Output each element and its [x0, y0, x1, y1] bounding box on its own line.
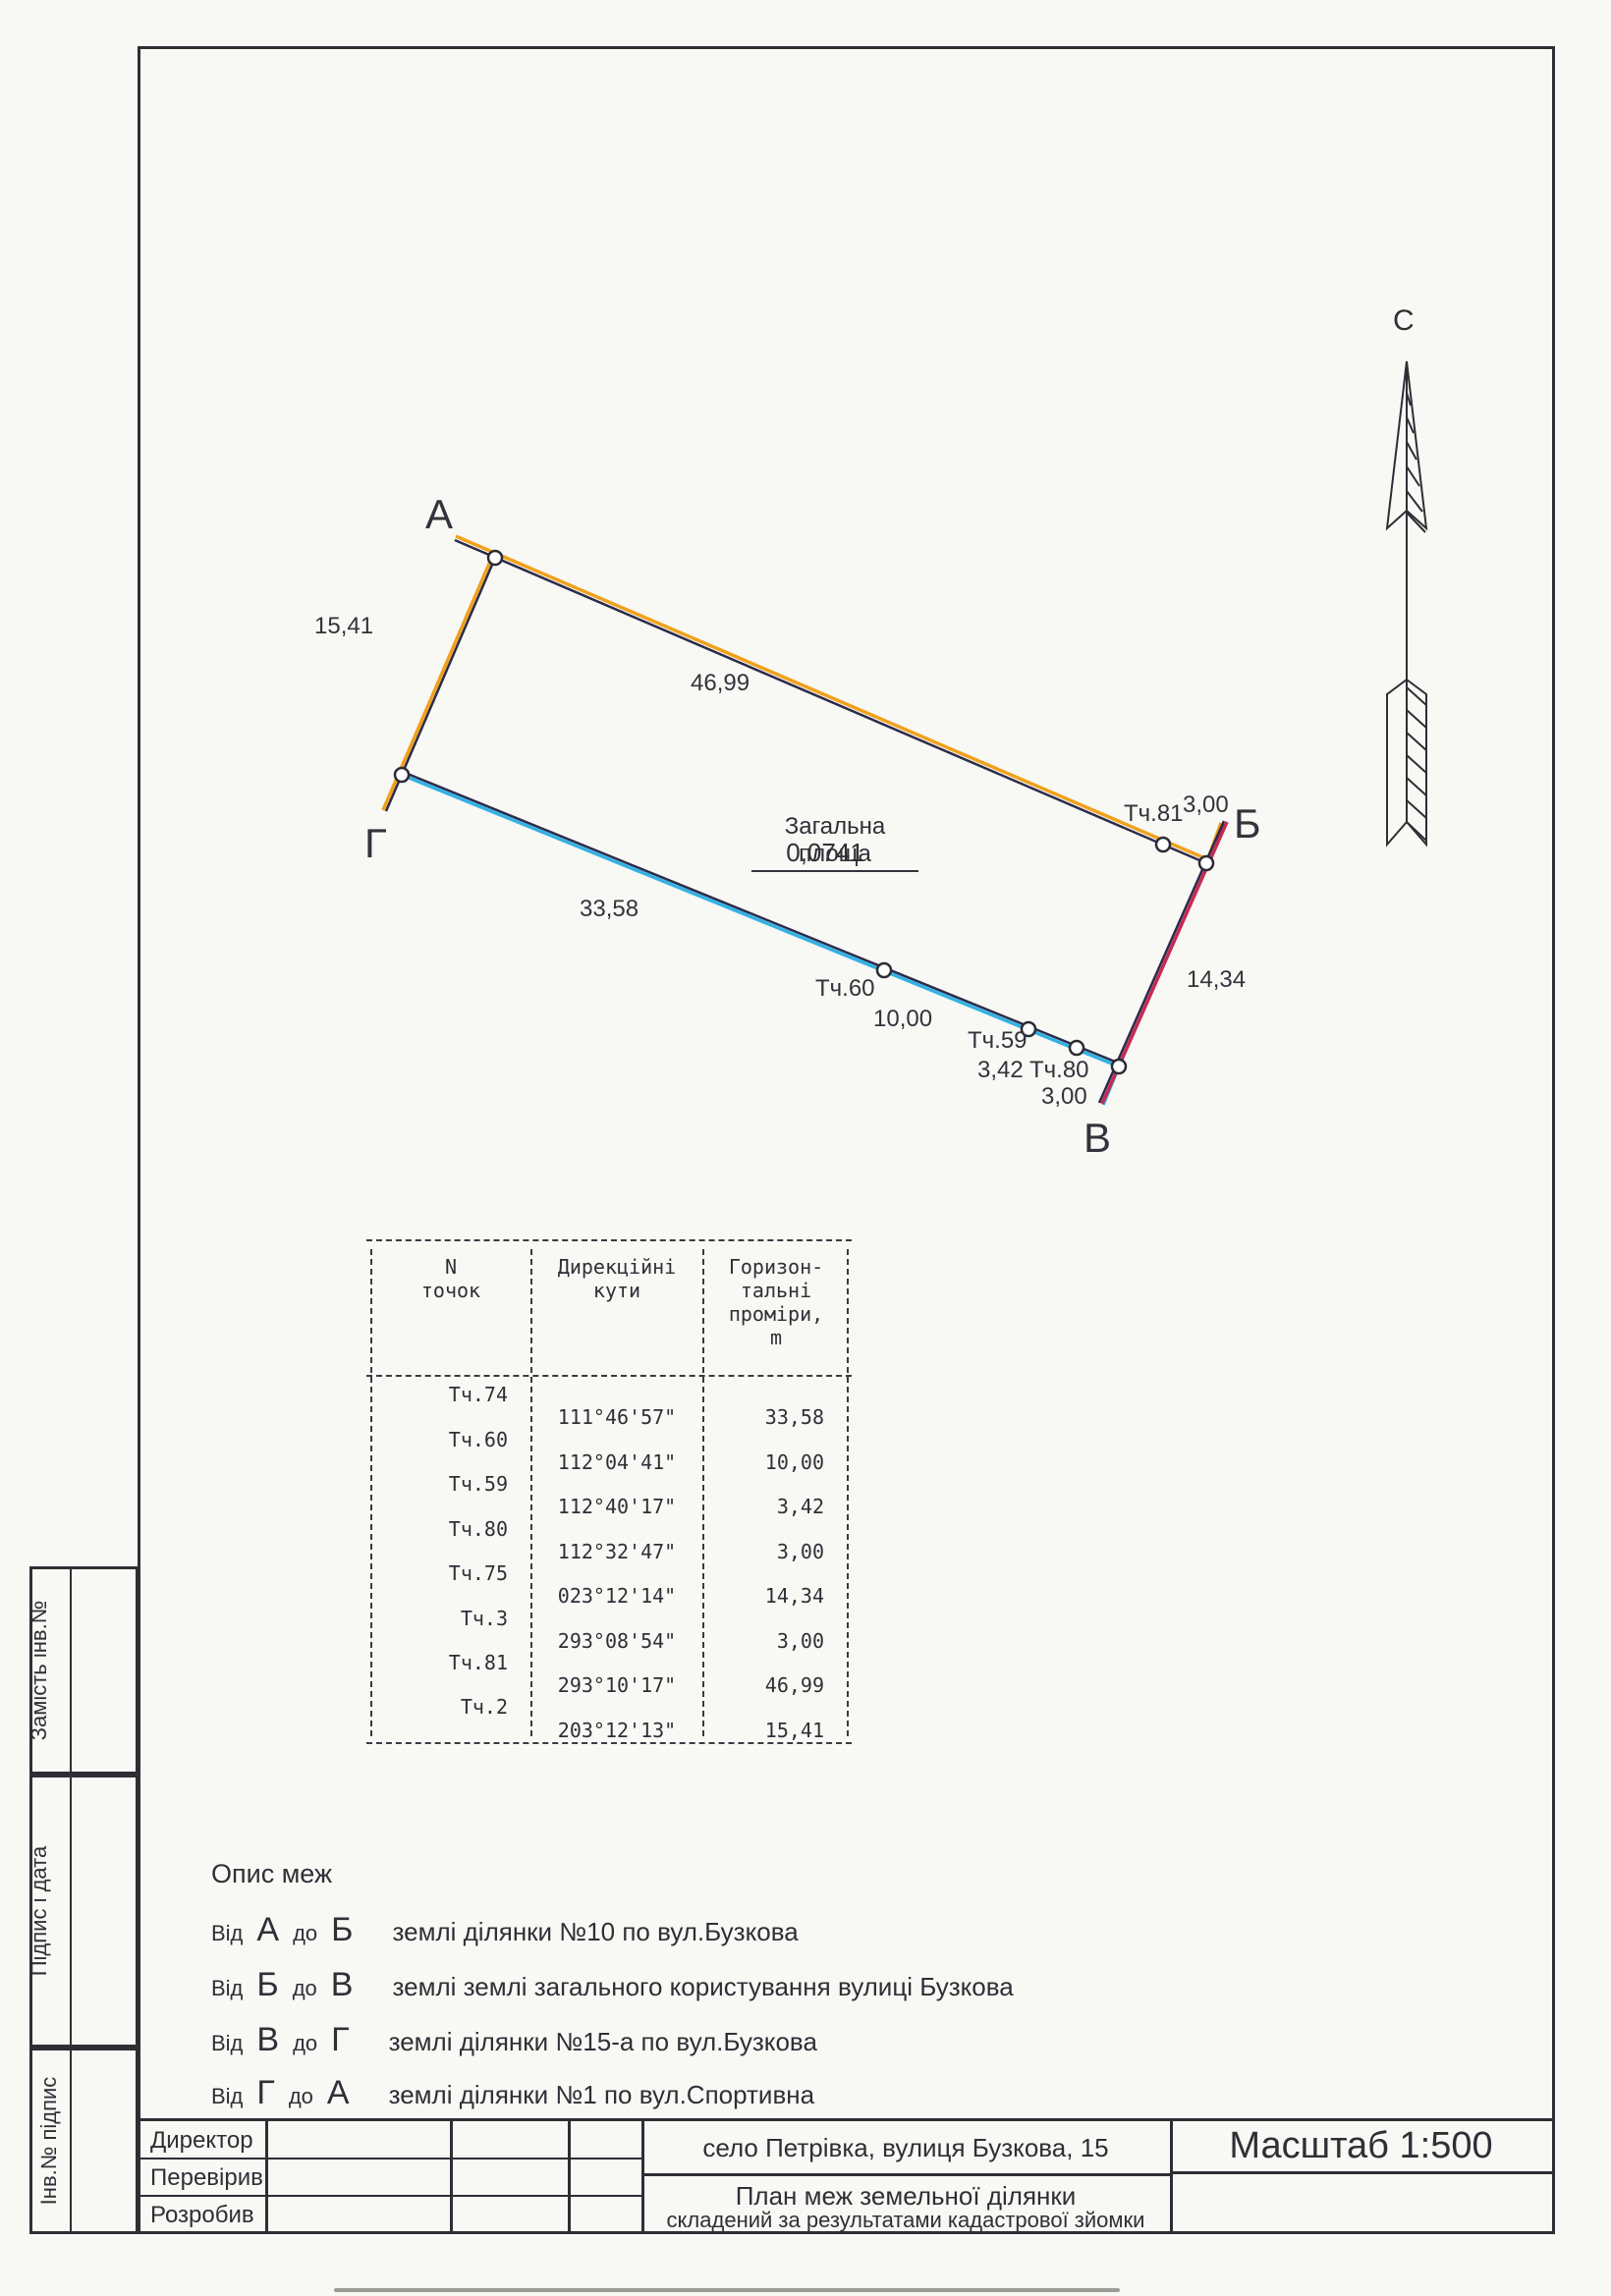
- boundary-desc: землі ділянки №1 по вул.Спортивна: [389, 2080, 814, 2110]
- distance-label-s59: 3,42: [977, 1057, 1024, 1084]
- north-arrow-icon: [1370, 309, 1449, 859]
- boundary-desc: землі ділянки №10 по вул.Бузкова: [392, 1917, 798, 1947]
- sidebar-box-divider: [70, 2050, 72, 2231]
- sidebar-box-divider: [70, 1569, 72, 1772]
- distance-label-g60: 33,58: [580, 896, 639, 923]
- from-letter: Б: [256, 1966, 278, 2004]
- table-dist: 33,58: [706, 1405, 824, 1429]
- scan-artifact: [334, 2288, 1120, 2292]
- title-block-row-line: [140, 2195, 641, 2197]
- boundary-row: Від Б до В землі землі загального корист…: [211, 1966, 1014, 2004]
- role-developed: Розробив: [150, 2202, 254, 2229]
- table-dist: 15,41: [706, 1719, 824, 1742]
- title-block-row-line: [140, 2158, 641, 2159]
- table-point: Тч.81: [370, 1651, 508, 1674]
- table-header-points: N: [372, 1255, 529, 1279]
- sidebar-label-pidpys-data: Підпис і дата: [27, 1775, 52, 2048]
- point-tch80-circle: [1070, 1041, 1083, 1055]
- title-block-divider: [265, 2121, 268, 2231]
- table-point: Тч.80: [370, 1517, 508, 1541]
- sidebar-label-zamist-inv: Замість інв.№: [27, 1566, 52, 1775]
- table-border-top: [366, 1239, 852, 1241]
- table-point: Тч.75: [370, 1561, 508, 1585]
- table-header-points: точок: [372, 1279, 529, 1302]
- table-angle: 112°04'41": [538, 1450, 695, 1474]
- title-block: Директор Перевірив Розробив село Петрівк…: [138, 2118, 1555, 2234]
- table-header-angles: Дирекційні: [538, 1255, 695, 1279]
- scanned-cadastral-plan-sheet: Замість інв.№ Підпис і дата Інв.№ підпис…: [0, 0, 1611, 2296]
- boundary-row: Від А до Б землі ділянки №10 по вул.Бузк…: [211, 1911, 799, 1949]
- from-letter: В: [256, 2021, 279, 2059]
- point-tch81-circle: [1156, 838, 1170, 851]
- distance-label-vb: 14,34: [1187, 966, 1246, 994]
- distance-label-ab: 46,99: [691, 670, 750, 697]
- table-point: Тч.59: [370, 1472, 508, 1496]
- point-tch3-circle: [1199, 856, 1213, 870]
- distance-label-b81: 3,00: [1183, 792, 1229, 819]
- table-point: Тч.60: [370, 1428, 508, 1451]
- table-header-measures: проміри,: [697, 1302, 855, 1326]
- table-angle: 112°40'17": [538, 1495, 695, 1518]
- distance-label-s80: 3,00: [1041, 1083, 1087, 1111]
- to-letter: Б: [331, 1911, 353, 1949]
- corner-label-v: В: [1083, 1115, 1111, 1162]
- boundary-desc: землі ділянки №15-а по вул.Бузкова: [389, 2027, 817, 2057]
- distance-label-ag: 15,41: [314, 613, 373, 640]
- table-header-measures: m: [697, 1326, 855, 1349]
- point-label-tch81: Тч.81: [1124, 800, 1184, 828]
- to-word: до: [293, 1976, 317, 2001]
- role-director: Директор: [150, 2127, 253, 2155]
- table-point: Тч.2: [370, 1695, 508, 1719]
- table-dist: 3,00: [706, 1540, 824, 1563]
- boundary-desc: землі землі загального користування вули…: [392, 1972, 1013, 2002]
- sidebar-box-divider: [70, 1777, 72, 2045]
- map-scale: Масштаб 1:500: [1170, 2125, 1552, 2167]
- title-block-row-line: [1170, 2171, 1552, 2174]
- title-block-row-line: [641, 2173, 1170, 2176]
- role-checked: Перевірив: [150, 2164, 263, 2192]
- table-angle: 203°12'13": [538, 1719, 695, 1742]
- table-border-bottom: [366, 1742, 852, 1744]
- point-label-tch60: Тч.60: [815, 975, 875, 1003]
- from-word: Від: [211, 2084, 243, 2109]
- table-header-measures: тальні: [697, 1279, 855, 1302]
- document-subtitle: складений за результатами кадастрової зй…: [641, 2208, 1170, 2233]
- table-dist: 3,00: [706, 1629, 824, 1653]
- table-point: Тч.3: [370, 1607, 508, 1630]
- boundary-ab-orange-line: [456, 536, 1207, 859]
- table-dist: 14,34: [706, 1584, 824, 1608]
- to-word: до: [289, 2084, 313, 2109]
- table-header-measures: Горизон-: [697, 1255, 855, 1279]
- table-dist: 10,00: [706, 1450, 824, 1474]
- table-point: Тч.74: [370, 1383, 508, 1406]
- survey-table: N точок Дирекційні кути Горизон- тальні …: [366, 1239, 852, 1744]
- total-area-value: 0,0741: [751, 838, 899, 868]
- title-block-divider: [568, 2121, 571, 2231]
- title-block-divider: [450, 2121, 453, 2231]
- point-label-tch80: Тч.80: [1029, 1057, 1089, 1084]
- table-angle: 293°10'17": [538, 1673, 695, 1697]
- table-header-angles: кути: [538, 1279, 695, 1302]
- table-angle: 023°12'14": [538, 1584, 695, 1608]
- to-letter: Г: [331, 2021, 349, 2059]
- from-word: Від: [211, 2031, 243, 2056]
- point-g-circle: [395, 768, 409, 782]
- to-letter: В: [331, 1966, 354, 2004]
- boundary-row: Від Г до А землі ділянки №1 по вул.Спорт…: [211, 2074, 814, 2112]
- to-letter: А: [327, 2074, 350, 2112]
- point-tch60-circle: [877, 963, 891, 977]
- point-a-circle: [488, 551, 502, 565]
- from-letter: А: [256, 1911, 279, 1949]
- corner-label-g: Г: [364, 820, 387, 867]
- table-column-divider: [530, 1249, 532, 1736]
- corner-label-b: Б: [1234, 800, 1261, 847]
- boundary-description-title: Опис меж: [211, 1859, 332, 1889]
- from-word: Від: [211, 1976, 243, 2001]
- table-header-separator: [366, 1375, 852, 1377]
- table-angle: 293°08'54": [538, 1629, 695, 1653]
- point-label-tch59: Тч.59: [968, 1027, 1028, 1055]
- from-word: Від: [211, 1921, 243, 1946]
- boundary-row: Від В до Г землі ділянки №15-а по вул.Бу…: [211, 2021, 817, 2059]
- distance-label-s60: 10,00: [873, 1006, 932, 1033]
- to-word: до: [293, 2031, 317, 2056]
- to-word: до: [293, 1921, 317, 1946]
- table-angle: 112°32'47": [538, 1540, 695, 1563]
- table-angle: 111°46'57": [538, 1405, 695, 1429]
- sidebar-label-inv-pidpys: Інв.№ підпис: [36, 2048, 62, 2234]
- point-v-circle: [1112, 1060, 1126, 1073]
- site-address: село Петрівка, вулиця Бузкова, 15: [641, 2133, 1170, 2163]
- corner-label-a: А: [425, 491, 453, 538]
- from-letter: Г: [256, 2074, 274, 2112]
- table-dist: 3,42: [706, 1495, 824, 1518]
- table-dist: 46,99: [706, 1673, 824, 1697]
